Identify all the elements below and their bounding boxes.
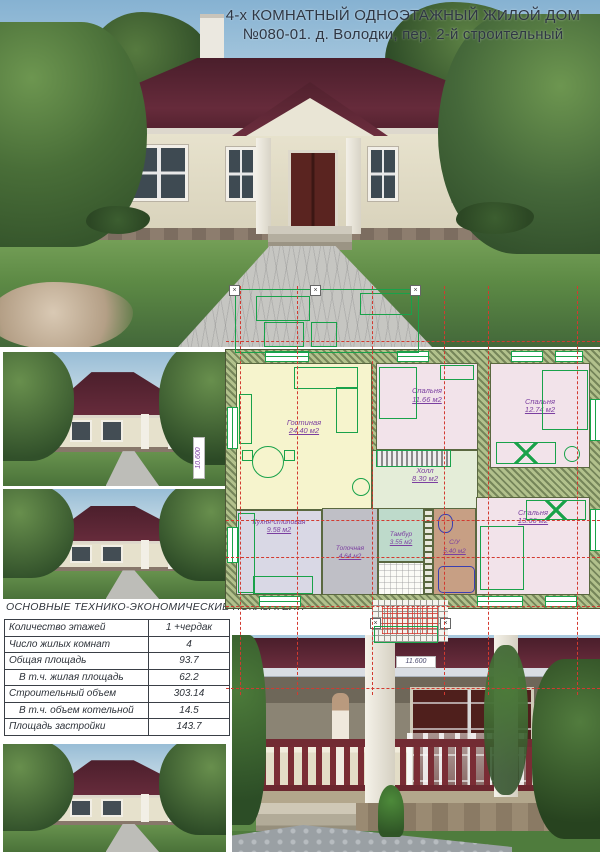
furniture-outline	[542, 370, 588, 430]
dimension-label-width: 11.600	[396, 656, 436, 668]
row-value: 93.7	[149, 653, 230, 670]
furniture-outline	[294, 367, 358, 389]
sheet-title: 4-х КОМНАТНЫЙ ОДНОЭТАЖНЫЙ ЖИЛОЙ ДОМ №080…	[212, 6, 594, 44]
table-row: Площадь застройки 143.7	[5, 719, 230, 736]
window	[70, 545, 92, 563]
portico-column	[346, 138, 361, 234]
porch-column	[141, 414, 149, 449]
climbing-roses	[232, 635, 266, 825]
table-row: В т.ч. жилая площадь 62.2	[5, 669, 230, 686]
dimension-label-depth: 10.600	[193, 437, 205, 479]
room-name: Тамбур	[390, 531, 412, 538]
window-opening	[266, 352, 308, 361]
furniture-outline	[336, 387, 358, 433]
porch-column	[365, 635, 395, 803]
room-area: 8.30 м2	[372, 475, 478, 484]
row-value: 143.7	[149, 719, 230, 736]
window-opening	[398, 352, 428, 361]
room-label: Топочная 4.64 м2	[322, 545, 378, 562]
grid-line-vertical	[372, 286, 373, 695]
row-label: В т.ч. жилая площадь	[5, 669, 149, 686]
furniture-outline	[242, 450, 253, 461]
room-label: Тамбур 3.55 м2	[378, 531, 424, 548]
window-opening	[260, 597, 300, 606]
room-tambour: Тамбур 3.55 м2	[378, 508, 424, 562]
elevation-window-outline	[264, 322, 304, 347]
room-area: 3.55 м2	[378, 539, 424, 548]
bushes	[532, 659, 600, 839]
furniture-outline	[379, 367, 417, 419]
window	[226, 147, 256, 201]
furniture-outline	[440, 365, 474, 380]
window-opening	[512, 352, 542, 361]
project-sheet: 4-х КОМНАТНЫЙ ОДНОЭТАЖНЫЙ ЖИЛОЙ ДОМ №080…	[0, 0, 600, 855]
room-name: Холл	[416, 466, 433, 475]
window	[101, 799, 123, 817]
table-row: Число жилых комнат 4	[5, 636, 230, 653]
climbing-roses	[484, 645, 528, 795]
window-opening	[228, 408, 237, 448]
grid-line-horizontal	[226, 341, 600, 342]
room-area: 5.40 м2	[433, 548, 476, 557]
entrance-stairs	[424, 508, 433, 595]
elevation-window-outline	[256, 296, 310, 321]
sapling	[378, 785, 404, 837]
elevation-window-outline	[360, 293, 412, 315]
window-opening	[556, 352, 582, 361]
porch-opening	[378, 562, 424, 595]
grid-line-vertical	[297, 286, 298, 695]
window	[70, 799, 92, 817]
terrace-elevation-overlay	[235, 289, 419, 353]
table-row: Общая площадь 93.7	[5, 653, 230, 670]
portico-column	[256, 138, 271, 234]
grid-line-vertical	[577, 286, 578, 695]
flowerbed	[0, 282, 133, 347]
plant-outline	[352, 478, 370, 496]
window	[70, 420, 92, 441]
side-render-2	[3, 489, 226, 599]
row-value: 1 +чердак	[149, 620, 230, 637]
window	[101, 420, 123, 441]
row-label: Строительный объем	[5, 686, 149, 703]
sheet-title-line2: №080-01. д. Володки, пер. 2-й строительн…	[212, 25, 594, 44]
tech-indicators-table: Количество этажей 1 +чердак Число жилых …	[4, 619, 230, 736]
window-opening	[546, 597, 576, 606]
row-value: 4	[149, 636, 230, 653]
furniture-outline	[480, 526, 524, 590]
table-row: Количество этажей 1 +чердак	[5, 620, 230, 637]
window-opening	[591, 400, 600, 440]
grid-line-vertical	[488, 286, 489, 695]
window-opening	[591, 510, 600, 550]
grid-line-vertical	[444, 286, 445, 695]
axis-marker: ×	[310, 285, 321, 296]
grid-line-horizontal	[226, 557, 600, 558]
furniture-outline	[253, 576, 313, 594]
window	[368, 147, 398, 201]
furniture-outline	[284, 450, 295, 461]
floor-plan: Гостиная 24.40 м2 Спальня 11.66 м2 Спаль…	[226, 350, 600, 608]
sheet-title-line1: 4-х КОМНАТНЫЙ ОДНОЭТАЖНЫЙ ЖИЛОЙ ДОМ	[212, 6, 594, 25]
table-row: Строительный объем 303.14	[5, 686, 230, 703]
axis-marker: ×	[410, 285, 421, 296]
table-row: В т.ч. объем котельной 14.5	[5, 702, 230, 719]
row-label: Количество этажей	[5, 620, 149, 637]
grid-line-horizontal	[226, 606, 600, 607]
row-value: 14.5	[149, 702, 230, 719]
axis-marker: ×	[440, 618, 451, 629]
row-value: 303.14	[149, 686, 230, 703]
grid-line-horizontal	[226, 688, 600, 689]
elevation-window-outline	[311, 322, 337, 347]
row-label: Площадь застройки	[5, 719, 149, 736]
grid-line-vertical	[240, 286, 241, 695]
row-label: Общая площадь	[5, 653, 149, 670]
furniture-outline	[496, 442, 556, 464]
front-door	[288, 150, 338, 234]
row-label: Число жилых комнат	[5, 636, 149, 653]
row-value: 62.2	[149, 669, 230, 686]
room-name: Гостиная	[287, 418, 321, 427]
axis-marker: ×	[229, 285, 240, 296]
grid-line-horizontal	[226, 520, 600, 521]
toilet-outline	[438, 514, 453, 533]
row-label: В т.ч. объем котельной	[5, 702, 149, 719]
porch-column	[141, 794, 149, 822]
window-opening	[478, 597, 522, 606]
furniture-outline	[252, 446, 284, 478]
room-name: Топочная	[336, 545, 364, 552]
window	[101, 545, 123, 563]
porch-column	[141, 540, 149, 569]
terrace-green-outline	[374, 626, 438, 643]
room-label: Холл 8.30 м2	[372, 467, 478, 484]
room-boiler: Топочная 4.64 м2	[322, 508, 378, 595]
room-name: С/У	[449, 539, 460, 546]
side-render-3	[3, 744, 226, 852]
built-in-closet	[376, 450, 451, 467]
room-label: С/У 5.40 м2	[433, 539, 476, 556]
